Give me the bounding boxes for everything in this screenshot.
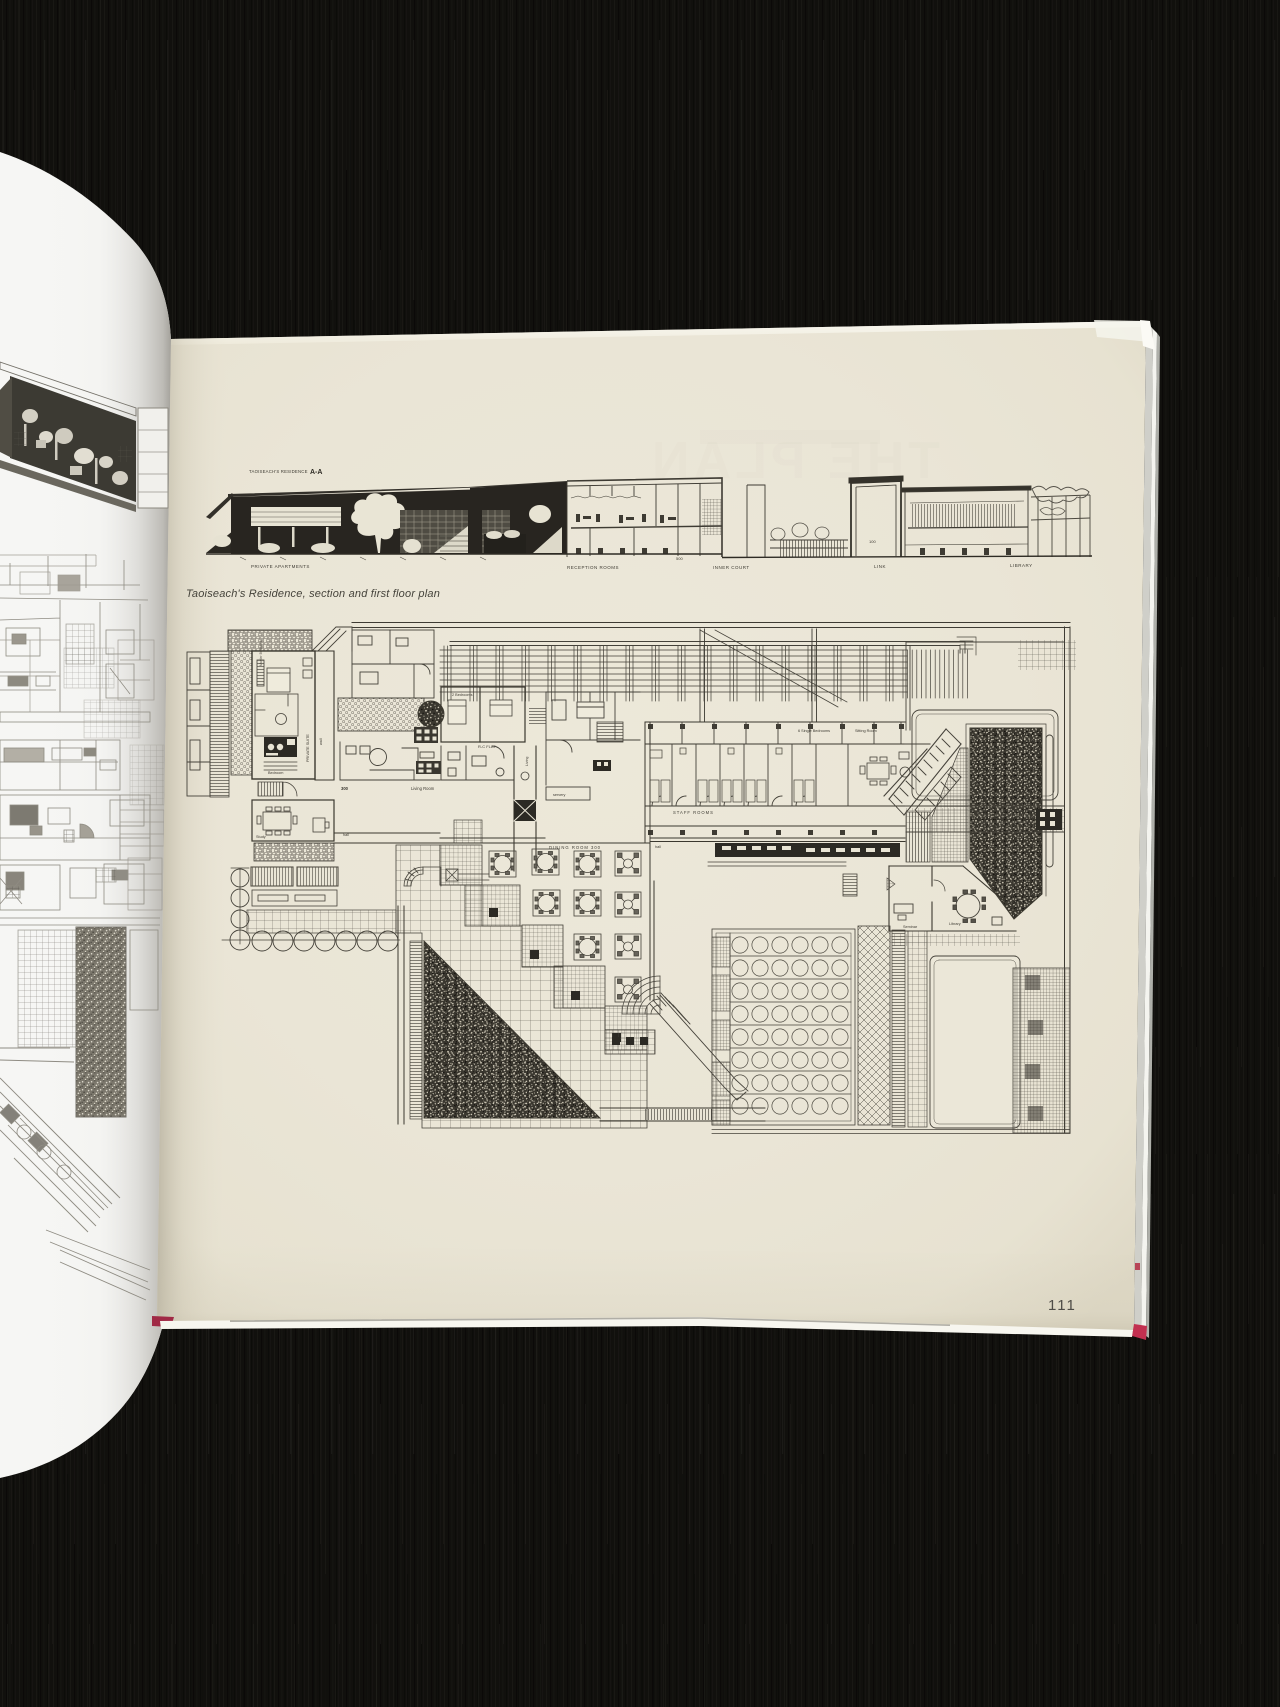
svg-text:PRIVATE SUITE: PRIVATE SUITE: [306, 734, 310, 762]
svg-text:Taoiseach's Residence, section: Taoiseach's Residence, section and first…: [186, 588, 440, 600]
svg-text:6 Single Bedrooms: 6 Single Bedrooms: [798, 729, 830, 733]
svg-text:Living Room: Living Room: [411, 786, 435, 791]
svg-text:hall: hall: [343, 833, 349, 837]
svg-text:TAOISEACH'S RESIDENCE: TAOISEACH'S RESIDENCE: [249, 469, 308, 474]
svg-text:STAFF ROOMS: STAFF ROOMS: [673, 810, 714, 815]
svg-text:300: 300: [341, 786, 349, 791]
svg-text:A-A: A-A: [310, 469, 322, 476]
svg-text:Bedroom: Bedroom: [268, 771, 283, 775]
svg-text:500: 500: [676, 556, 683, 561]
svg-text:Living: Living: [525, 757, 529, 766]
svg-text:PRIVATE APARTMENTS: PRIVATE APARTMENTS: [251, 564, 310, 569]
svg-text:Library: Library: [949, 922, 961, 926]
svg-text:111: 111: [1048, 1297, 1077, 1314]
svg-text:LIBRARY: LIBRARY: [1010, 563, 1033, 568]
svg-text:INNER COURT: INNER COURT: [713, 565, 750, 570]
svg-text:Master Bedroom: Master Bedroom: [259, 640, 263, 666]
svg-text:Study: Study: [256, 835, 266, 839]
svg-text:wall: wall: [319, 738, 323, 745]
svg-text:100: 100: [869, 539, 876, 544]
svg-text:Seminar: Seminar: [903, 925, 918, 929]
svg-text:LINK: LINK: [874, 564, 886, 569]
svg-text:hall: hall: [655, 845, 661, 849]
svg-text:RECEPTION ROOMS: RECEPTION ROOMS: [567, 565, 619, 570]
svg-text:Sitting Room: Sitting Room: [855, 729, 877, 733]
svg-text:servery: servery: [553, 793, 566, 797]
svg-text:2 Bedrooms: 2 Bedrooms: [452, 693, 473, 697]
